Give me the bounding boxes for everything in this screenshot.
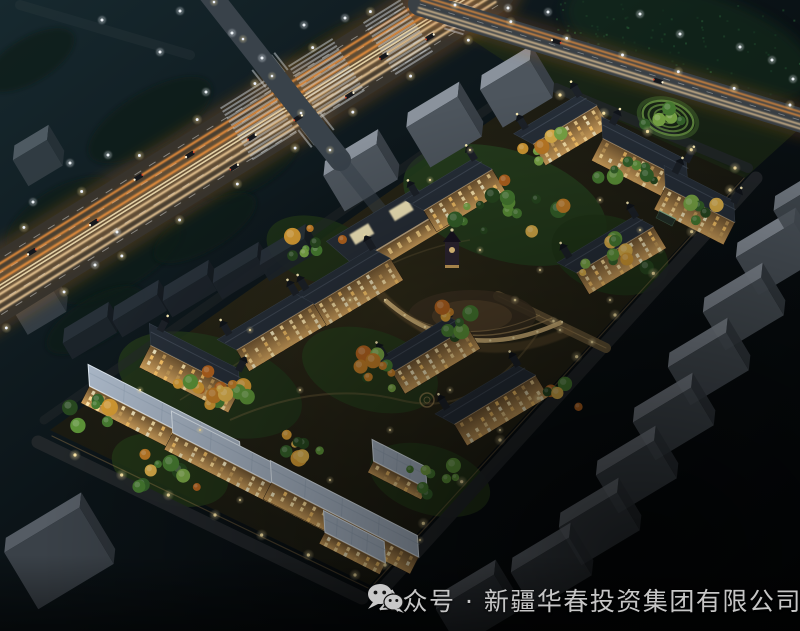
- vignette: [0, 0, 800, 631]
- rendering-canvas: 公众号 · 新疆华春投资集团有限公司: [0, 0, 800, 631]
- caption-text: 公众号 · 新疆华春投资集团有限公司: [376, 582, 800, 618]
- aerial-night-scene: [0, 0, 800, 631]
- corner-vignette: [0, 0, 800, 631]
- watermark-caption: 公众号 · 新疆华春投资集团有限公司: [366, 582, 800, 618]
